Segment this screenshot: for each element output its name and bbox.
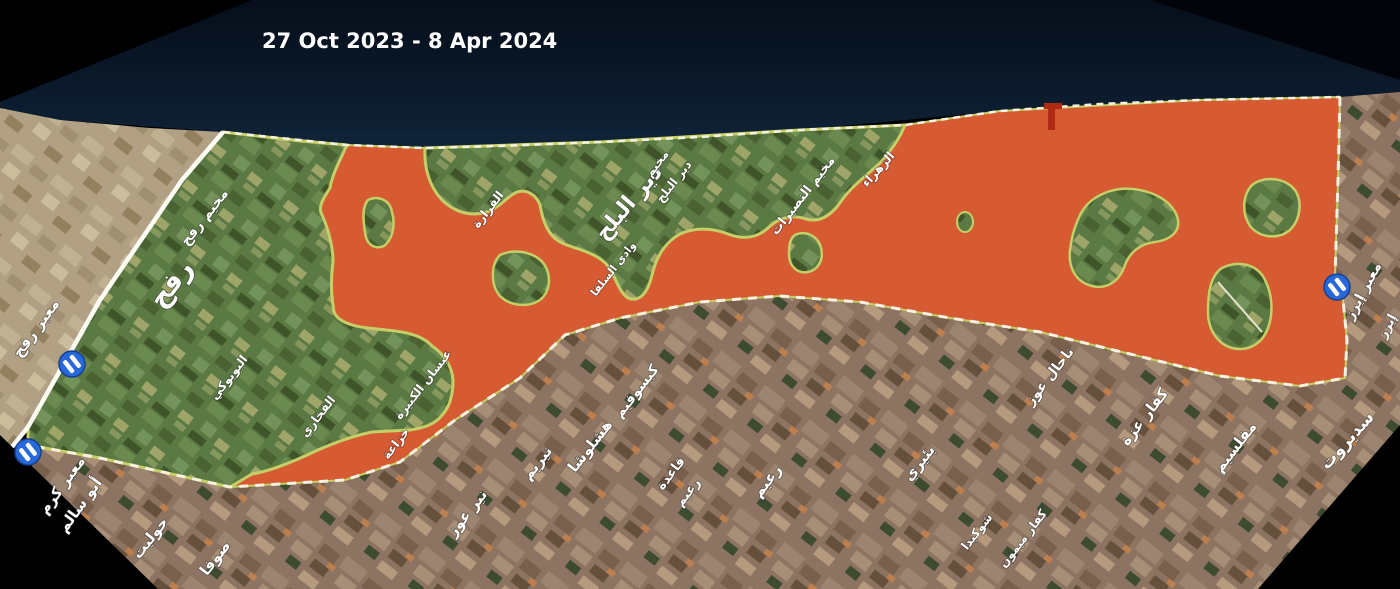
green-island bbox=[493, 252, 549, 305]
green-island bbox=[789, 233, 822, 272]
map-canvas: 27 Oct 2023 - 8 Apr 2024 معبر رفح معبر ك… bbox=[0, 0, 1400, 589]
green-island bbox=[957, 212, 973, 232]
gaza-control-map: 27 Oct 2023 - 8 Apr 2024 معبر رفح معبر ك… bbox=[0, 0, 1400, 589]
green-island bbox=[363, 198, 393, 247]
erez-crossing-icon bbox=[1324, 274, 1350, 300]
kerem-shalom-crossing-icon bbox=[15, 439, 41, 465]
date-range-title: 27 Oct 2023 - 8 Apr 2024 bbox=[262, 29, 557, 53]
rafah-crossing-icon bbox=[59, 351, 85, 377]
green-island bbox=[1244, 179, 1299, 236]
